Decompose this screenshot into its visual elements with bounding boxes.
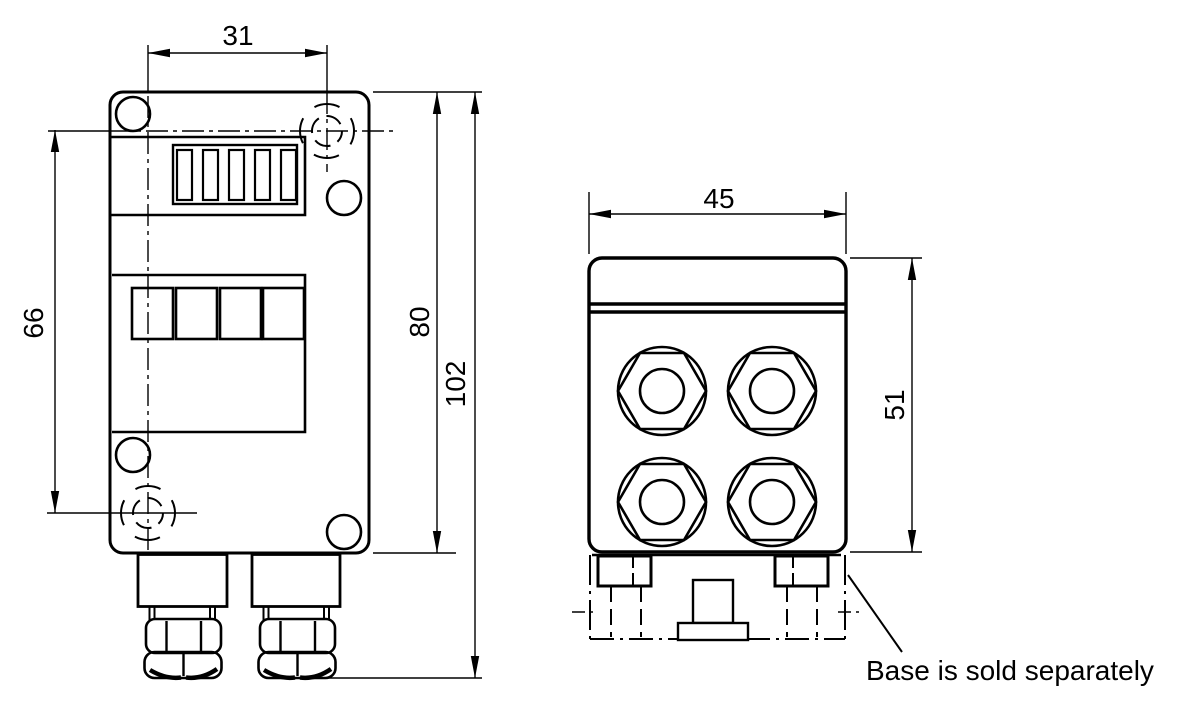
side-view (572, 192, 922, 652)
gland-face-bottom-left (618, 458, 706, 546)
gland-face-top-right (728, 347, 816, 435)
module-squares (132, 288, 304, 339)
base (572, 555, 864, 640)
dimension-drawing (0, 0, 1181, 709)
gland-hex-upper (146, 619, 221, 653)
dim-66-label: 66 (19, 273, 49, 373)
gland-shading (300, 669, 331, 678)
gland-shading (150, 670, 181, 678)
gland-shading (186, 669, 217, 678)
base-note: Base is sold separately (866, 656, 1154, 686)
base-pedestal-stem (693, 580, 733, 623)
cover-screw-bottom-left (116, 438, 150, 472)
dim-31-label: 31 (198, 21, 278, 51)
gland-face-top-left (618, 347, 706, 435)
base-pedestal-flange (678, 623, 748, 640)
dim-80-label: 80 (405, 272, 435, 372)
cover-screw-bottom-right (327, 515, 361, 549)
gland-body (252, 555, 340, 607)
terminal-slots (177, 150, 296, 200)
dim-51-label: 51 (880, 355, 910, 455)
enclosure-outline (110, 92, 369, 553)
cable-gland-left (138, 555, 227, 679)
gland-hex-upper (260, 619, 335, 653)
cover-screw-right (327, 181, 361, 215)
dim-31 (148, 45, 327, 92)
cable-gland-right (252, 555, 340, 679)
base-tab-left (598, 556, 651, 586)
note-leader-line (848, 575, 902, 652)
gland-face-bottom-right (728, 458, 816, 546)
middle-block (112, 275, 305, 432)
base-tab-right (775, 556, 828, 586)
gland-body (138, 555, 227, 607)
dim-102-label: 102 (441, 334, 471, 434)
gland-shading (264, 670, 295, 678)
dim-66 (51, 130, 59, 513)
technical-drawing-page: 31 66 80 102 45 51 Base is sold separate… (0, 0, 1181, 709)
cover-screw-top-left (116, 97, 150, 131)
dim-45-label: 45 (679, 184, 759, 214)
